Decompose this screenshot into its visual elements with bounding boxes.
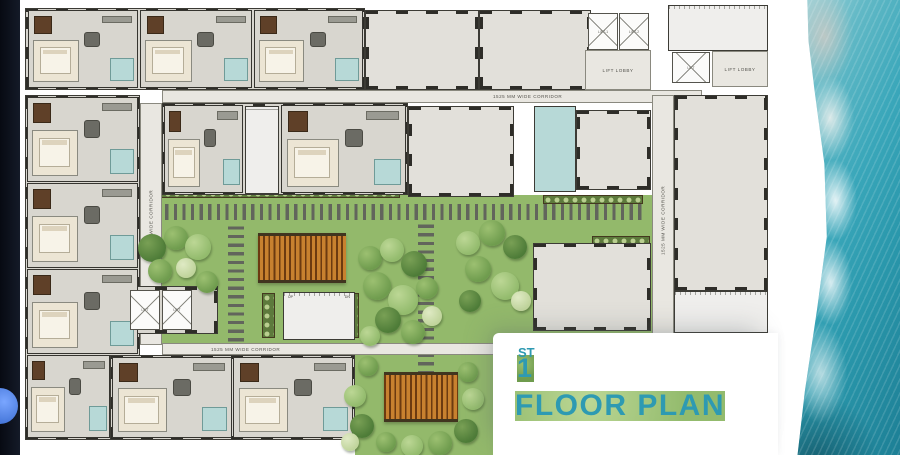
kitchen [33, 103, 50, 123]
tree-14 [401, 320, 425, 344]
stair-top-right [668, 5, 768, 51]
bedroom [239, 388, 289, 432]
kitchen [33, 189, 50, 209]
tree-4 [148, 259, 172, 283]
kitchen [288, 111, 308, 132]
corridor-bottom: 1525 MM WIDE CORRIDOR [162, 343, 512, 355]
apartment-unit-8 [164, 105, 243, 193]
wooden-pergola-1 [258, 233, 346, 283]
lift-lobby-top-right-label: LIFT LOBBY [713, 52, 767, 86]
sofa [102, 16, 131, 24]
floor-number: 1ST [517, 355, 534, 382]
bedroom [33, 40, 78, 83]
bedroom [145, 40, 191, 83]
tree-5 [176, 258, 196, 278]
apartment-unit-10 [112, 357, 232, 438]
hall-top-1 [365, 10, 479, 90]
tree-8 [380, 238, 404, 262]
dining-table [84, 292, 100, 309]
lift-4: LIFT [130, 290, 160, 330]
bed [36, 395, 59, 424]
apartment-unit-6 [27, 269, 138, 354]
bathroom [89, 406, 107, 430]
bedroom [32, 130, 78, 176]
lift-label: LIFT [163, 291, 191, 329]
bed [173, 147, 195, 177]
sofa [328, 16, 357, 24]
stair-row2 [245, 106, 279, 194]
tree-7 [358, 246, 382, 270]
bed [124, 396, 158, 424]
dining-table [84, 32, 100, 48]
tree-10 [363, 272, 391, 300]
tree-18 [479, 220, 505, 246]
bathroom [202, 407, 228, 431]
dining-table [345, 129, 363, 147]
bedroom [168, 139, 200, 187]
dining-table [69, 378, 81, 395]
bathroom [335, 58, 359, 81]
tree-23 [511, 291, 531, 311]
apartment-unit-2 [140, 10, 252, 88]
dining-table [173, 379, 191, 396]
corridor-right-label: 1525 MM WIDE CORRIDOR [653, 96, 673, 344]
stair-down-label: DN [345, 295, 350, 299]
planter-box-5 [262, 293, 275, 338]
apartment-unit-3 [254, 10, 363, 88]
lift-2: LIFT-2 [619, 13, 649, 50]
bedroom [32, 302, 78, 348]
bathroom [323, 407, 349, 431]
kitchen [34, 16, 51, 34]
stepping-stone-path-1 [148, 204, 646, 220]
sofa [314, 363, 346, 371]
sofa [217, 111, 238, 120]
bathroom [223, 159, 240, 185]
tree-15 [360, 326, 380, 346]
lift-lobby-top: LIFT LOBBY [585, 50, 651, 90]
bed [152, 47, 184, 74]
lift-label: LIFT [131, 291, 159, 329]
stair-central: UPDN [283, 292, 355, 340]
sofa [102, 275, 131, 283]
kitchen [240, 363, 259, 382]
hall-2 [576, 110, 651, 190]
bed [245, 396, 279, 424]
bedroom [118, 388, 168, 432]
lift-lobby-top-label: LIFT LOBBY [586, 51, 650, 89]
sofa [366, 111, 399, 120]
bed [40, 47, 71, 74]
floor-suffix: ST [518, 345, 535, 360]
lift-label: LIFT-2 [620, 14, 648, 49]
bed [39, 224, 71, 253]
kitchen [33, 275, 50, 295]
corridor-right: 1525 MM WIDE CORRIDOR [652, 95, 674, 345]
kitchen [147, 16, 165, 34]
lift-lobby-top-right: LIFT LOBBY [712, 51, 768, 87]
sofa [83, 361, 105, 369]
lift-3: LIFT [672, 52, 710, 83]
apartment-unit-5 [27, 183, 138, 268]
planter-box-2 [543, 195, 643, 204]
tree-22 [459, 290, 481, 312]
dining-table [84, 120, 100, 137]
bedroom [32, 216, 78, 262]
bathroom [224, 58, 248, 81]
tree-32 [458, 362, 478, 382]
tree-33 [341, 433, 359, 451]
bed [294, 147, 330, 177]
stepping-stone-path-2 [228, 226, 244, 350]
bedroom [259, 40, 304, 83]
sofa [102, 189, 131, 197]
tree-24 [358, 356, 378, 376]
tree-28 [401, 435, 423, 455]
lift-label: LIFT-1 [589, 14, 617, 49]
tree-25 [344, 385, 366, 407]
apartment-unit-4 [27, 97, 138, 182]
corridor-bottom-label: 1525 MM WIDE CORRIDOR [163, 344, 511, 354]
sofa [193, 363, 225, 371]
bathroom [110, 235, 134, 260]
tree-1 [138, 234, 166, 262]
apartment-unit-11 [233, 357, 353, 438]
tree-16 [422, 306, 442, 326]
wooden-pergola-2 [384, 372, 458, 422]
title-panel: 1ST FLOOR PLAN [493, 333, 778, 455]
lift-5: LIFT [162, 290, 192, 330]
tree-30 [454, 419, 478, 443]
ocean-aerial-photo [778, 0, 900, 455]
kitchen [119, 363, 138, 382]
ocean-water [778, 0, 900, 455]
tree-19 [503, 235, 527, 259]
apartment-unit-1 [28, 10, 138, 88]
bed [39, 138, 71, 167]
sofa [102, 103, 131, 111]
bed [39, 310, 71, 339]
tree-13 [375, 307, 401, 333]
dining-table [294, 379, 312, 396]
dining-table [197, 32, 214, 48]
bathroom [374, 159, 401, 185]
tree-9 [401, 251, 427, 277]
tree-20 [465, 256, 491, 282]
bedroom [287, 139, 339, 187]
corridor-top: 1525 MM WIDE CORRIDOR [162, 90, 702, 103]
tree-27 [376, 432, 396, 452]
kitchen [169, 111, 181, 132]
dining-table [310, 32, 326, 48]
sofa [216, 16, 246, 24]
corridor-top-label: 1525 MM WIDE CORRIDOR [163, 91, 701, 102]
kitchen [260, 16, 277, 34]
kitchen [32, 361, 45, 380]
bathroom [110, 58, 134, 81]
bedroom [31, 387, 65, 432]
tree-12 [416, 277, 438, 299]
stair-up-label: UP [288, 295, 293, 299]
apartment-unit-7 [27, 355, 110, 438]
apartment-unit-9 [281, 105, 406, 193]
tree-3 [185, 234, 211, 260]
hall-1 [408, 106, 514, 197]
lift-label: LIFT [673, 53, 709, 82]
bed [265, 47, 296, 74]
dining-table [204, 129, 216, 147]
tree-17 [456, 231, 480, 255]
tree-31 [462, 388, 484, 410]
stair-bottom-right [674, 291, 768, 333]
tree-6 [196, 271, 218, 293]
bathroom [110, 149, 134, 174]
hall-3 [533, 243, 651, 331]
page: LIFT LOBBYLIFT LOBBY1525 MM WIDE CORRIDO… [0, 0, 900, 455]
tree-29 [428, 431, 452, 455]
toilets [534, 106, 576, 192]
dining-table [84, 206, 100, 223]
hall-top-2 [479, 10, 591, 90]
hall-4 [674, 95, 768, 291]
floor-plan-label: FLOOR PLAN [515, 391, 725, 421]
lift-1: LIFT-1 [588, 13, 618, 50]
